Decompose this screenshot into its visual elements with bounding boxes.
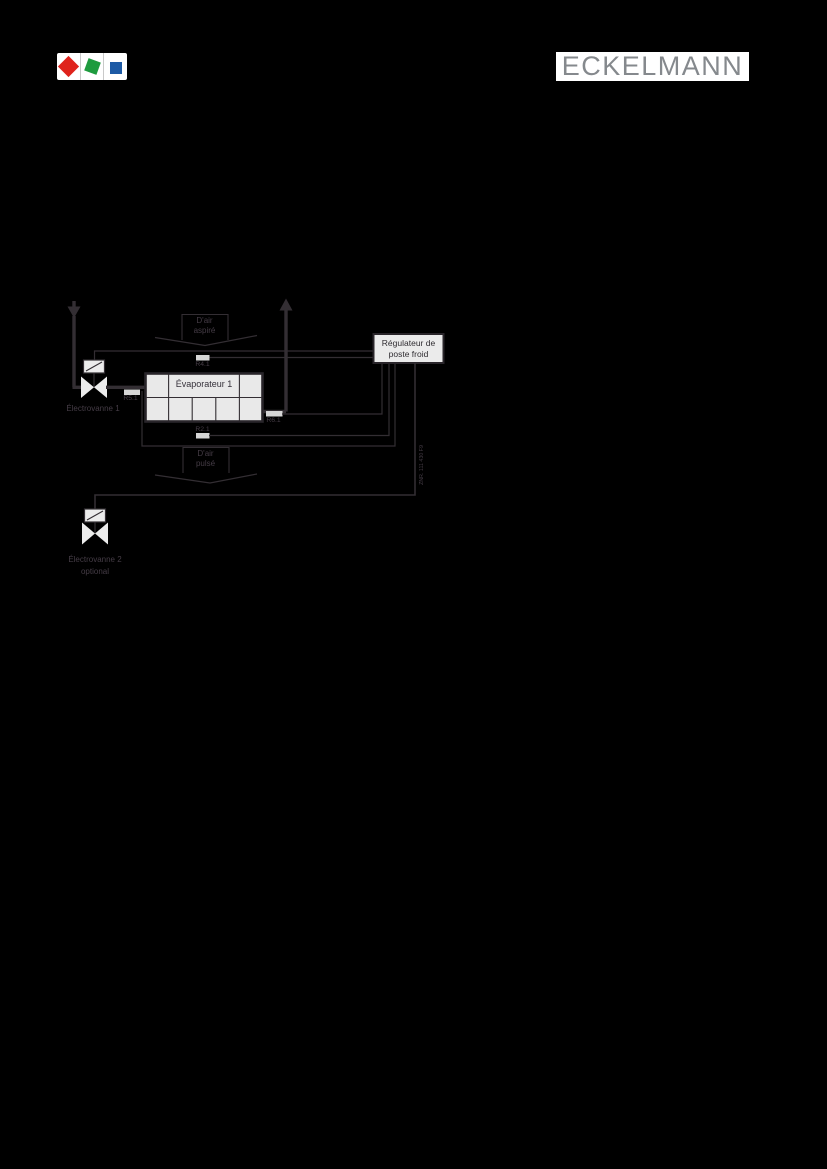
airflow-bottom-arrow xyxy=(155,474,257,483)
drawing-number-label: ZNR. 111 430 F9 xyxy=(419,437,425,493)
airflow-bottom-label: D'air pulsé xyxy=(182,449,229,469)
controller-label-line1: Régulateur de xyxy=(374,338,443,349)
sensor-r41-body xyxy=(196,355,210,361)
valve1-label: Électrovanne 1 xyxy=(56,404,130,413)
valve2-label-line2: optional xyxy=(57,566,133,578)
airflow-top-label-line2: aspiré xyxy=(181,326,228,336)
airflow-bottom-label-line1: D'air xyxy=(182,449,229,459)
evaporator-label: Évaporateur 1 xyxy=(158,379,250,389)
airflow-top-label: D'air aspiré xyxy=(181,316,228,336)
sensor-r51-label: R5.1 xyxy=(119,395,142,402)
valve2-bowtie-left xyxy=(82,523,95,545)
valve1-bowtie-left xyxy=(81,377,94,399)
sensor-r21-body xyxy=(196,433,210,439)
sensor-r21-label: R2.1 xyxy=(192,426,213,433)
valve1-control-cable xyxy=(95,351,374,360)
sensor-r41-label: R4.1 xyxy=(192,361,213,368)
airflow-top-label-line1: D'air xyxy=(181,316,228,326)
sensor-r61-body xyxy=(266,411,283,417)
cold-room-schematic xyxy=(0,0,827,1169)
valve2-label: Électrovanne 2 optional xyxy=(57,554,133,577)
up-arrow-icon xyxy=(280,299,293,311)
valve2-bowtie-right xyxy=(95,523,108,545)
airflow-bottom-label-line2: pulsé xyxy=(182,459,229,469)
valve1-bowtie-right xyxy=(94,377,107,399)
controller-label: Régulateur de poste froid xyxy=(374,338,443,360)
airflow-top-arrow xyxy=(155,336,257,346)
controller-label-line2: poste froid xyxy=(374,349,443,360)
sensor-r61-cable xyxy=(282,363,382,414)
valve2-label-line1: Électrovanne 2 xyxy=(57,554,133,566)
sensor-r61-label: R6.1 xyxy=(262,417,285,424)
document-page: ECKELMANN xyxy=(0,0,827,1169)
